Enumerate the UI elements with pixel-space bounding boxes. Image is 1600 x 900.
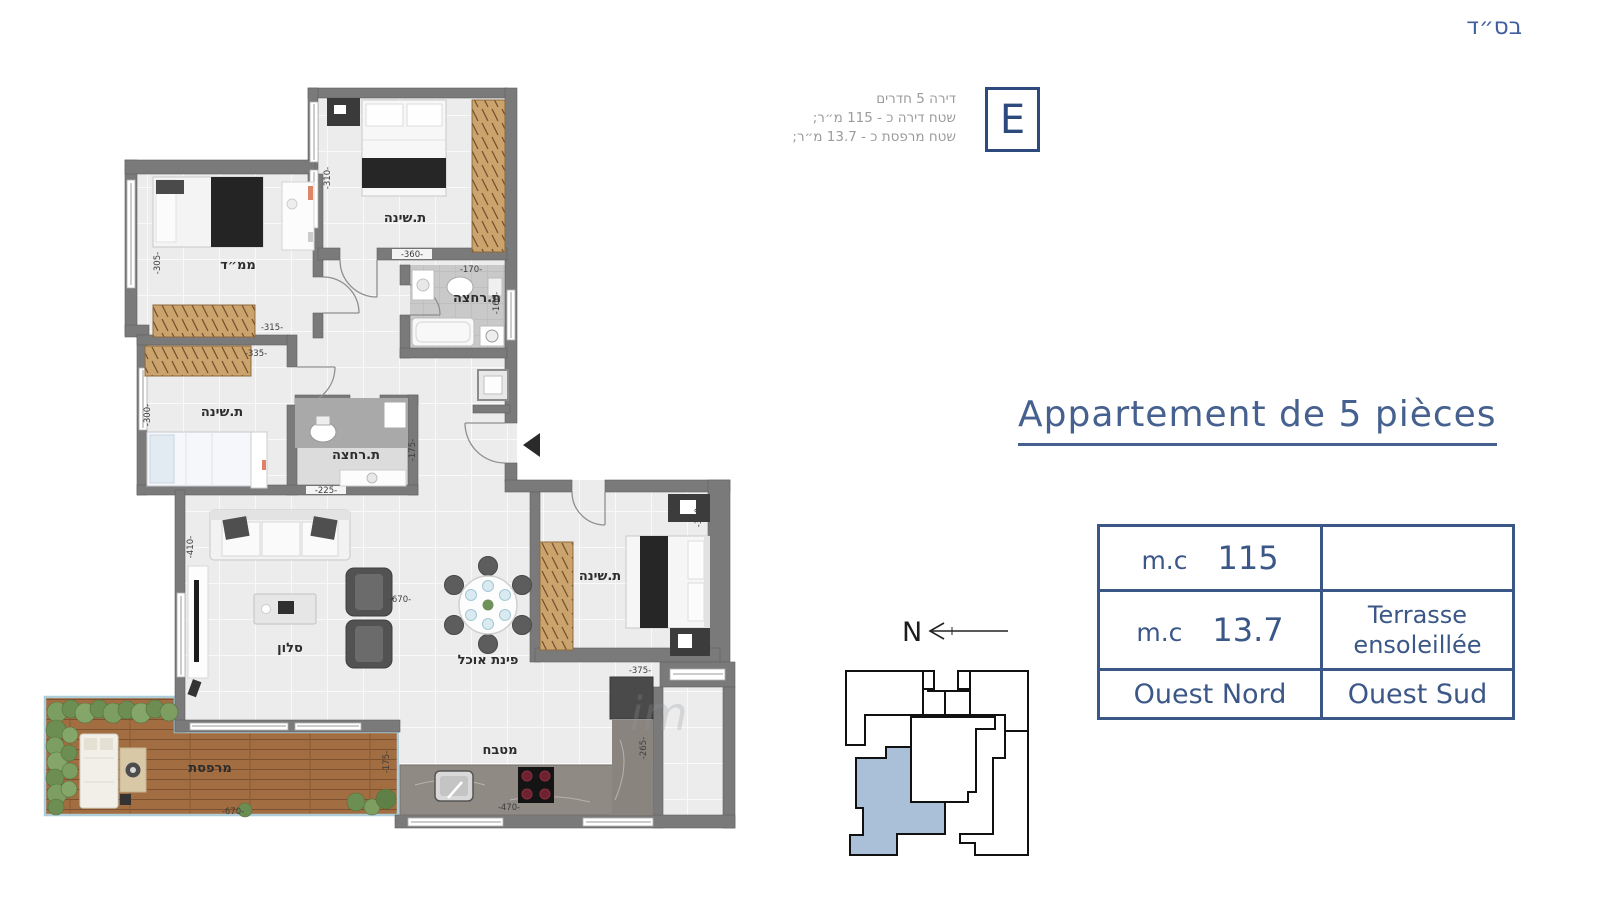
room-label-bedroom-left: ת.שינה: [201, 405, 243, 420]
unit-letter: E: [1000, 97, 1025, 143]
dimension-label: -175-: [382, 751, 392, 773]
dimension-label: -340-: [694, 505, 704, 527]
unit-info-line: דירה 5 חדרים: [790, 90, 956, 109]
building-key-plan: [823, 645, 1038, 860]
unit-info-line: שטח דירה כ - 115 מ״ר;: [790, 109, 956, 128]
dimension-label: -360-: [401, 250, 423, 260]
terrace-desc-line: ensoleillée: [1327, 630, 1508, 660]
dimension-label: -470-: [498, 803, 520, 813]
orientation-west-south: Ouest Sud: [1322, 670, 1514, 719]
dimension-label: -170-: [460, 265, 482, 275]
table-row: m.c 13.7 Terrasse ensoleillée: [1099, 591, 1514, 670]
spec-table: m.c 115 m.c 13.7 Terrasse ensoleillée Ou…: [1097, 524, 1515, 720]
dimension-label: -305-: [153, 252, 163, 274]
area-terrace-value: 13.7: [1212, 611, 1283, 649]
room-label-dining-area: פינת אוכל: [458, 653, 519, 668]
dimension-label: -335-: [245, 349, 267, 359]
dimension-label: -300-: [143, 404, 153, 426]
dimension-label: -175-: [408, 439, 418, 461]
dimension-label: -265-: [639, 737, 649, 759]
unit-letter-badge: E: [985, 87, 1040, 152]
dimension-label: -375-: [629, 666, 651, 676]
room-label-kitchen: מטבח: [482, 743, 517, 758]
compass-arrow-icon: [930, 623, 1008, 639]
entrance-arrow-icon: [523, 433, 540, 457]
area-apartment-value: 115: [1217, 539, 1278, 577]
compass: N: [898, 612, 1018, 648]
blessing-text: בס״ד: [1440, 14, 1522, 40]
room-label-bathroom-middle: ת.רחצה: [332, 448, 380, 463]
room-label-bedroom-top: ת.שינה: [384, 211, 426, 226]
compass-north-label: N: [902, 617, 922, 648]
watermark-text: im: [630, 687, 688, 741]
area-unit-label: m.c: [1141, 546, 1187, 575]
area-terrace-cell: m.c 13.7: [1099, 591, 1322, 670]
dimension-label: -310-: [323, 167, 333, 189]
unit-info-line: שטח מרפסת כ - 13.7 מ״ר;: [790, 128, 956, 147]
orientation-west-north: Ouest Nord: [1099, 670, 1322, 719]
safe-room-furniture: [153, 177, 314, 250]
empty-cell: [1322, 526, 1514, 591]
table-row: Ouest Nord Ouest Sud: [1099, 670, 1514, 719]
room-label-safe-room: ממ״ד: [220, 258, 256, 273]
dimension-label: -160-: [492, 292, 502, 314]
bedroom-left-furniture: [147, 432, 267, 488]
room-label-living-room: סלון: [277, 641, 303, 656]
dimension-label: -410-: [186, 536, 196, 558]
page-title: Appartement de 5 pièces: [1018, 394, 1497, 446]
terrace-desc-line: Terrasse: [1327, 600, 1508, 630]
dimension-label: -315-: [261, 323, 283, 333]
room-label-terrace: מרפסת: [188, 761, 232, 776]
room-label-bedroom-right: ת.שינה: [579, 569, 621, 584]
floor-plan: im ת.שינה ממ״ד ת.רחצה ת.שינה ת.רחצה סלון…: [40, 80, 740, 840]
area-unit-label: m.c: [1136, 618, 1182, 647]
page: בס״ד דירה 5 חדרים שטח דירה כ - 115 מ״ר; …: [0, 0, 1600, 900]
area-apartment-cell: m.c 115: [1099, 526, 1322, 591]
dimension-label: -670-: [222, 807, 244, 817]
dimension-label: -670-: [389, 595, 411, 605]
terrace-desc-cell: Terrasse ensoleillée: [1322, 591, 1514, 670]
dimension-label: -225-: [315, 486, 337, 496]
shaft: [478, 370, 508, 400]
table-row: m.c 115: [1099, 526, 1514, 591]
unit-info-block: דירה 5 חדרים שטח דירה כ - 115 מ״ר; שטח מ…: [790, 90, 956, 147]
